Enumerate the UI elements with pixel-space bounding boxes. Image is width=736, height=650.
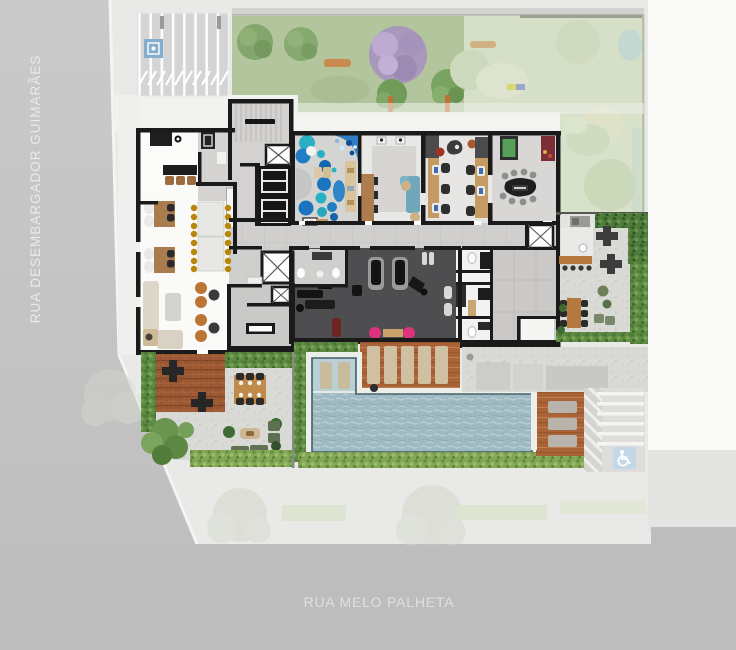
svg-text:RUA MELO PALHETA: RUA MELO PALHETA xyxy=(304,594,455,610)
svg-text:RUA DESEMBARGADOR GUIMARÃES: RUA DESEMBARGADOR GUIMARÃES xyxy=(28,55,43,324)
